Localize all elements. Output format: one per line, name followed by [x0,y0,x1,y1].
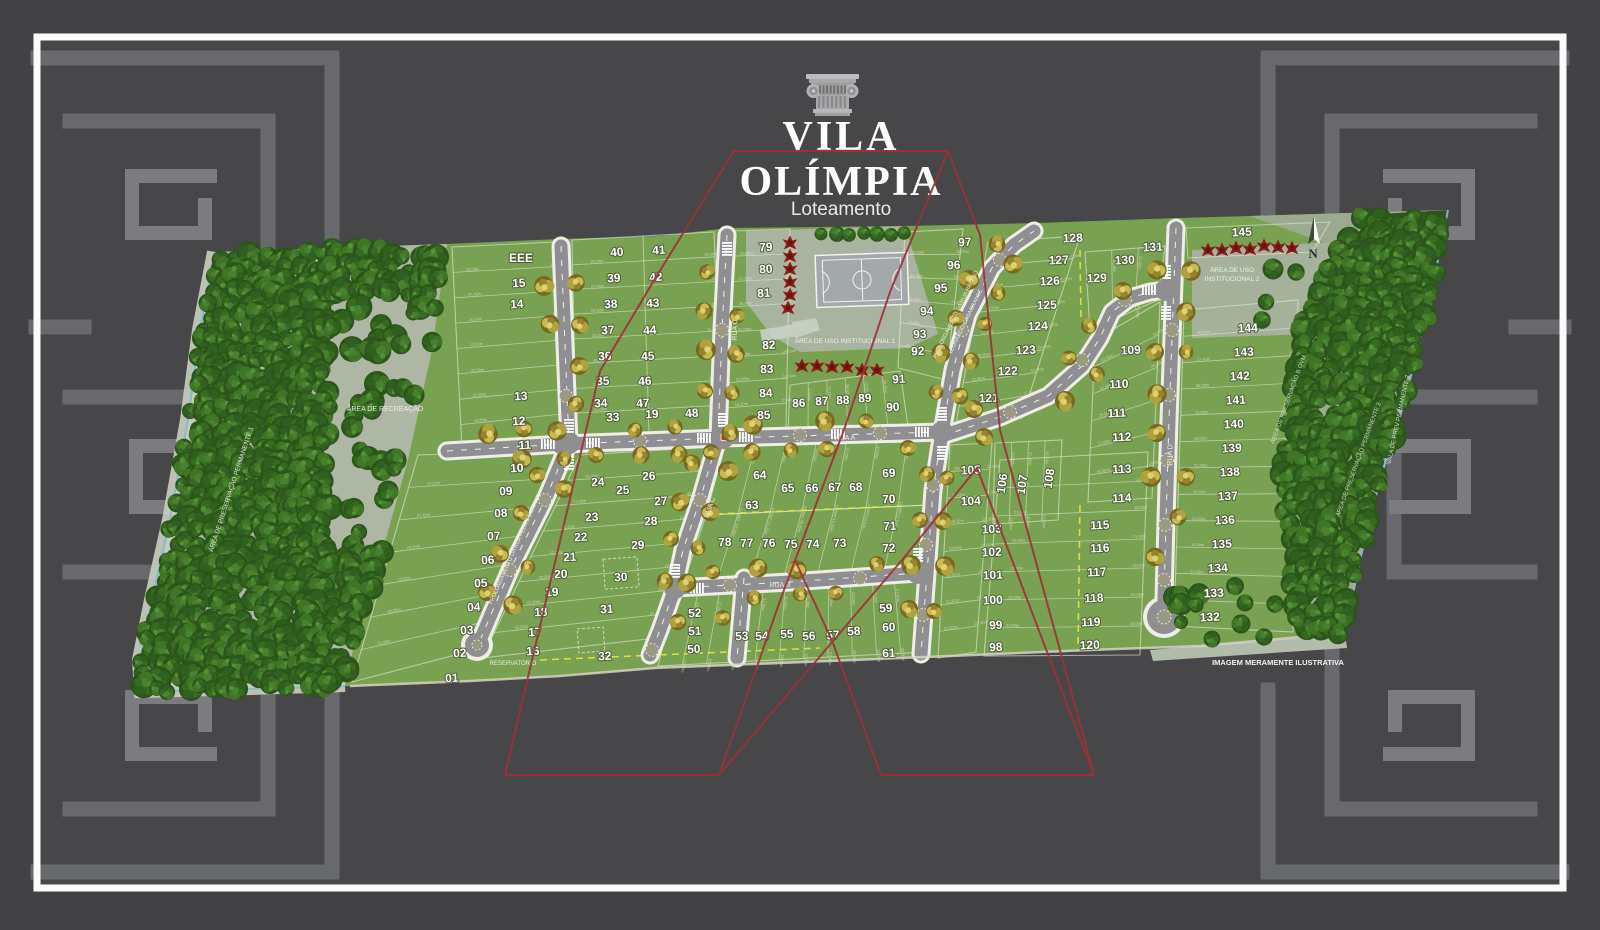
svg-text:26,50m: 26,50m [591,307,605,313]
svg-text:132: 132 [1199,609,1220,624]
svg-text:26,50m: 26,50m [739,300,753,306]
svg-text:145: 145 [1231,224,1252,239]
svg-text:21,90m: 21,90m [1194,463,1208,468]
svg-text:123: 123 [1015,342,1036,357]
svg-text:26,50m: 26,50m [469,316,483,322]
svg-text:86: 86 [792,396,806,411]
svg-text:RUA C: RUA C [732,319,740,341]
svg-text:15,00m: 15,00m [1132,563,1146,568]
svg-text:117: 117 [1087,564,1107,579]
svg-text:20: 20 [554,567,568,582]
svg-text:24,00m: 24,00m [783,348,797,354]
svg-text:27,45m: 27,45m [468,291,482,297]
svg-text:26,50m: 26,50m [1196,382,1210,388]
svg-text:07: 07 [487,529,501,544]
svg-text:34: 34 [594,396,608,411]
svg-text:37: 37 [601,323,615,338]
svg-text:26,50m: 26,50m [1045,451,1050,465]
svg-text:10,00m: 10,00m [740,251,754,256]
svg-text:76: 76 [762,536,776,551]
svg-text:EEE: EEE [509,251,533,265]
svg-text:71: 71 [883,519,897,534]
svg-text:12,00m: 12,00m [956,249,970,254]
svg-text:95: 95 [934,281,948,296]
svg-text:45: 45 [641,349,655,364]
svg-text:44: 44 [643,323,657,338]
svg-text:73: 73 [833,536,847,551]
svg-text:55: 55 [780,627,794,642]
svg-text:ÁREA DE RECREAÇÃO: ÁREA DE RECREAÇÃO [347,404,424,413]
svg-text:64: 64 [753,468,767,483]
svg-text:94: 94 [920,304,934,319]
svg-text:125: 125 [1036,297,1057,312]
svg-text:40,00m: 40,00m [1194,436,1208,441]
svg-text:27,45m: 27,45m [739,275,753,281]
svg-text:108: 108 [1041,467,1058,489]
svg-text:24,00m: 24,00m [851,592,856,606]
svg-text:INSTITUCIONAL 2: INSTITUCIONAL 2 [1205,276,1260,283]
svg-text:13: 13 [514,389,528,404]
svg-text:50: 50 [687,642,701,657]
svg-text:59: 59 [879,601,893,616]
svg-text:141: 141 [1225,392,1246,407]
svg-text:109: 109 [1120,342,1141,357]
svg-text:60: 60 [882,620,896,635]
svg-text:61: 61 [882,646,896,661]
svg-text:40,00m: 40,00m [1135,305,1141,319]
svg-text:ÁREA DE USO: ÁREA DE USO [1210,265,1254,274]
svg-text:18: 18 [534,605,548,620]
svg-text:10,00m: 10,00m [427,480,441,486]
svg-text:12,00m: 12,00m [1009,517,1014,531]
svg-text:128: 128 [1062,230,1083,245]
svg-text:130: 130 [1114,252,1135,267]
svg-text:134: 134 [1207,560,1228,575]
svg-text:21,90m: 21,90m [736,376,750,382]
svg-text:81: 81 [757,286,771,301]
svg-text:92: 92 [911,344,925,359]
svg-text:113: 113 [1112,461,1132,476]
svg-text:40,00m: 40,00m [1008,595,1022,600]
svg-text:31: 31 [600,602,614,617]
svg-text:90: 90 [886,400,900,415]
svg-text:21,90m: 21,90m [1042,515,1047,529]
svg-text:72: 72 [882,541,896,556]
svg-text:116: 116 [1090,540,1110,555]
svg-text:115: 115 [1090,517,1110,532]
svg-text:119: 119 [1081,614,1101,629]
svg-text:VILA: VILA [782,114,899,160]
svg-text:27: 27 [654,494,668,509]
svg-text:133: 133 [1203,585,1224,600]
svg-text:131: 131 [1142,239,1163,254]
svg-text:10,00m: 10,00m [1011,452,1016,466]
svg-text:21: 21 [563,550,577,565]
svg-text:27,45m: 27,45m [910,273,924,278]
svg-text:53: 53 [735,629,749,644]
svg-text:24,00m: 24,00m [1131,592,1145,597]
svg-text:96: 96 [947,258,961,273]
svg-text:80: 80 [759,262,773,277]
svg-text:15: 15 [512,276,526,291]
svg-text:RUA A: RUA A [835,435,856,442]
svg-text:68: 68 [849,480,863,495]
svg-text:93: 93 [913,327,927,342]
svg-text:09: 09 [499,484,513,499]
svg-text:144: 144 [1237,320,1258,335]
svg-text:99: 99 [989,618,1003,633]
svg-text:89: 89 [858,391,872,406]
svg-text:06: 06 [481,553,495,568]
svg-text:33: 33 [606,410,620,425]
svg-text:N: N [1308,246,1318,261]
svg-text:RUA D: RUA D [1167,444,1175,466]
svg-text:142: 142 [1229,368,1250,383]
svg-text:67: 67 [828,480,842,495]
svg-text:32: 32 [598,649,612,664]
svg-text:12,00m: 12,00m [876,649,882,663]
svg-text:21,90m: 21,90m [1006,623,1020,628]
svg-text:77: 77 [740,536,754,551]
svg-text:ÁREA DE USO INSTITUCIONAL 1: ÁREA DE USO INSTITUCIONAL 1 [795,336,896,345]
svg-text:10: 10 [510,461,524,476]
svg-text:27,45m: 27,45m [1137,256,1143,270]
svg-text:RESERVATÓRIO: RESERVATÓRIO [490,660,537,667]
svg-text:70: 70 [882,492,896,507]
svg-text:27,45m: 27,45m [1190,569,1204,574]
svg-text:79: 79 [759,240,773,255]
svg-text:10,00m: 10,00m [1130,621,1144,626]
svg-text:14: 14 [510,297,524,312]
svg-text:24,00m: 24,00m [1192,516,1206,521]
svg-text:98: 98 [989,640,1003,655]
svg-text:111: 111 [1107,406,1127,421]
svg-text:Loteamento: Loteamento [791,199,891,220]
svg-text:04: 04 [467,600,481,615]
svg-text:66: 66 [805,481,819,496]
svg-text:118: 118 [1084,590,1104,605]
svg-text:26,50m: 26,50m [1012,538,1026,543]
svg-text:10,00m: 10,00m [1197,329,1211,335]
svg-text:143: 143 [1233,344,1254,359]
svg-text:03: 03 [460,623,474,638]
svg-text:138: 138 [1219,464,1240,479]
svg-text:88: 88 [836,393,850,408]
svg-text:102: 102 [981,544,1002,559]
svg-text:136: 136 [1214,512,1235,527]
svg-text:IMAGEM MERAMENTE ILUSTRATIVA: IMAGEM MERAMENTE ILUSTRATIVA [1212,658,1344,667]
svg-text:10,00m: 10,00m [803,653,809,667]
svg-text:05: 05 [474,576,488,591]
svg-text:104: 104 [960,493,981,508]
svg-text:23: 23 [585,510,599,525]
svg-text:08: 08 [494,506,508,521]
svg-text:27,45m: 27,45m [573,498,587,504]
svg-text:27,45m: 27,45m [828,652,833,666]
svg-text:24: 24 [591,475,605,490]
svg-text:52: 52 [688,606,702,621]
svg-text:56: 56 [802,629,816,644]
svg-text:26,50m: 26,50m [852,650,857,664]
svg-text:65: 65 [781,481,795,496]
svg-text:97: 97 [958,235,972,250]
svg-text:74: 74 [806,537,820,552]
svg-text:100: 100 [982,592,1003,607]
svg-text:10,00m: 10,00m [807,388,812,402]
svg-text:21,90m: 21,90m [1133,534,1147,539]
svg-text:137: 137 [1217,488,1238,503]
svg-text:10,00m: 10,00m [466,266,480,272]
svg-text:140: 140 [1223,416,1244,431]
svg-text:26: 26 [642,469,656,484]
svg-text:01: 01 [445,671,459,686]
svg-text:10,00m: 10,00m [911,250,925,255]
svg-text:124: 124 [1027,318,1048,333]
svg-text:126: 126 [1039,273,1060,288]
svg-text:OLÍMPIA: OLÍMPIA [740,158,943,205]
svg-text:58: 58 [847,624,861,639]
svg-text:51: 51 [688,624,702,639]
svg-text:10,00m: 10,00m [783,373,797,379]
svg-text:15,00m: 15,00m [1193,489,1207,494]
svg-text:12,00m: 12,00m [738,326,752,332]
svg-text:122: 122 [997,363,1018,378]
svg-text:84: 84 [759,386,773,401]
svg-text:91: 91 [892,372,906,387]
svg-text:28: 28 [644,514,658,529]
svg-text:110: 110 [1109,376,1129,391]
svg-text:38: 38 [604,297,618,312]
svg-text:48: 48 [685,406,699,421]
svg-text:30: 30 [614,570,628,585]
svg-text:83: 83 [760,362,774,377]
svg-text:02: 02 [453,646,467,661]
svg-text:10,00m: 10,00m [590,258,604,264]
svg-text:27,45m: 27,45m [1197,356,1211,362]
svg-text:12: 12 [512,414,526,429]
svg-text:101: 101 [982,567,1003,582]
svg-text:19: 19 [645,407,659,422]
svg-text:69: 69 [882,466,896,481]
svg-text:43: 43 [646,296,660,311]
svg-text:120: 120 [1079,637,1100,652]
svg-text:40: 40 [610,245,624,260]
svg-text:39: 39 [607,271,621,286]
svg-text:12,00m: 12,00m [1195,410,1209,415]
svg-text:40,00m: 40,00m [1134,505,1148,510]
svg-text:106: 106 [994,472,1011,494]
svg-text:11: 11 [518,438,532,453]
svg-text:87: 87 [815,394,829,409]
svg-text:78: 78 [718,535,732,550]
svg-text:135: 135 [1211,536,1232,551]
svg-text:12,00m: 12,00m [704,251,718,257]
svg-text:82: 82 [762,338,776,353]
svg-text:46: 46 [638,374,652,389]
svg-text:112: 112 [1112,429,1132,444]
svg-text:139: 139 [1221,440,1242,455]
svg-text:41: 41 [652,243,666,258]
svg-text:27,45m: 27,45m [1028,452,1033,466]
svg-text:129: 129 [1086,270,1107,285]
svg-text:40,00m: 40,00m [785,273,799,279]
svg-text:29: 29 [631,538,645,553]
svg-text:127: 127 [1048,252,1069,267]
svg-text:114: 114 [1112,490,1132,505]
svg-text:85: 85 [757,408,771,423]
svg-text:27,45m: 27,45m [591,283,605,289]
svg-text:75: 75 [784,537,798,552]
svg-text:22: 22 [574,530,588,545]
svg-text:10,00m: 10,00m [1191,542,1205,547]
svg-text:25: 25 [616,483,630,498]
svg-text:63: 63 [745,498,759,513]
